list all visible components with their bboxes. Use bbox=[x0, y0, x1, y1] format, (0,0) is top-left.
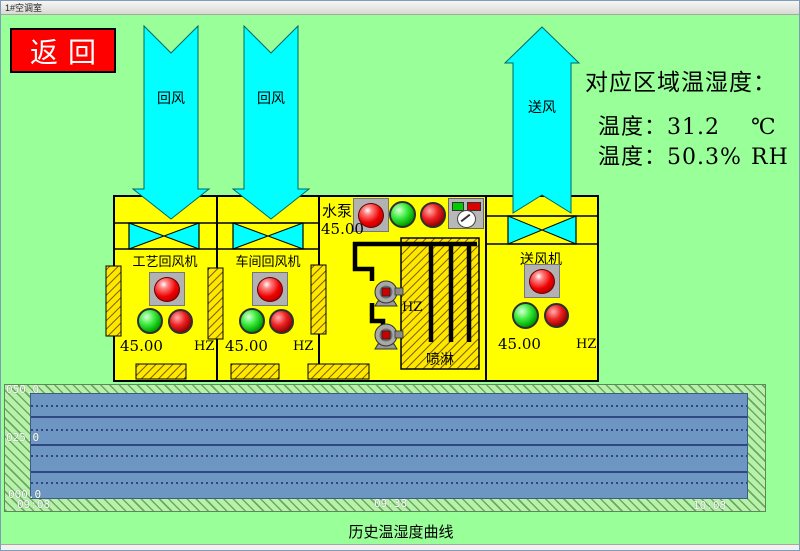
unit-label-workshop-return-fan: 车间回风机 bbox=[222, 251, 314, 270]
humidity-value: 50.3% bbox=[667, 145, 751, 170]
return-air-arrow bbox=[133, 26, 209, 219]
water-pump-freq: 45.00 bbox=[321, 220, 364, 238]
run-lamp-icon bbox=[389, 201, 416, 228]
back-button[interactable]: 返回 bbox=[10, 28, 116, 73]
temperature-value: 31.2 bbox=[667, 115, 751, 140]
red-dome-icon bbox=[257, 277, 283, 302]
freq-unit-label: HZ bbox=[576, 337, 596, 352]
run-lamp-icon bbox=[239, 308, 265, 334]
run-lamp-icon bbox=[137, 308, 163, 334]
hmi-window: 1#空调室 bbox=[0, 0, 800, 551]
run-lamp-icon bbox=[512, 302, 539, 329]
x-axis-label: 09:08 bbox=[17, 498, 50, 511]
humidity-unit: RH bbox=[751, 145, 789, 170]
spray-label: 喷淋 bbox=[426, 349, 454, 369]
stop-lamp-icon bbox=[269, 309, 294, 334]
unit-label-process-return-fan: 工艺回风机 bbox=[119, 251, 211, 270]
pump-selector-switch[interactable] bbox=[448, 198, 484, 229]
selector-dial-icon bbox=[457, 210, 476, 228]
spray-freq-unit-label: HZ bbox=[402, 300, 422, 315]
supply-air-label: 送风 bbox=[519, 97, 565, 117]
return-air-label: 回风 bbox=[251, 88, 291, 108]
trend-chart-plot bbox=[30, 393, 748, 499]
readout-title: 对应区域温湿度： bbox=[585, 63, 777, 97]
process-return-fan-button[interactable] bbox=[149, 272, 185, 306]
back-button-label: 返回 bbox=[30, 31, 106, 71]
temperature-label: 温度： bbox=[598, 115, 667, 140]
stop-lamp-icon bbox=[544, 303, 569, 328]
return-air-label: 回风 bbox=[151, 88, 191, 108]
y-axis-label: 025.0 bbox=[6, 431, 39, 444]
workshop-return-fan-freq: 45.00 bbox=[225, 337, 268, 355]
humidity-readout: 温度：50.3%RH bbox=[598, 139, 789, 171]
freq-unit-label: HZ bbox=[194, 339, 214, 354]
workshop-return-fan-button[interactable] bbox=[252, 272, 288, 306]
stop-lamp-icon bbox=[420, 202, 446, 228]
process-return-fan-freq: 45.00 bbox=[120, 337, 163, 355]
supply-fan-button[interactable] bbox=[524, 264, 560, 298]
temperature-readout: 温度：31.2℃ bbox=[598, 109, 777, 141]
stop-lamp-icon bbox=[168, 309, 193, 334]
red-dome-icon bbox=[154, 277, 180, 302]
y-axis-label: 050.0 bbox=[6, 383, 39, 396]
freq-unit-label: HZ bbox=[293, 339, 313, 354]
trend-gridlines bbox=[31, 394, 747, 498]
unit-label-water-pump: 水泵 bbox=[322, 200, 352, 221]
return-air-arrow bbox=[233, 26, 309, 219]
supply-fan-freq: 45.00 bbox=[498, 335, 541, 353]
x-axis-label: 10:08 bbox=[693, 499, 726, 512]
temperature-unit: ℃ bbox=[751, 115, 777, 140]
x-axis-label: 09:38 bbox=[374, 497, 407, 510]
supply-air-arrow bbox=[505, 27, 579, 213]
window-bottom-strip bbox=[1, 544, 800, 551]
red-dome-icon bbox=[529, 269, 555, 294]
humidity-label: 温度： bbox=[598, 145, 667, 170]
trend-chart-caption: 历史温湿度曲线 bbox=[301, 521, 501, 542]
